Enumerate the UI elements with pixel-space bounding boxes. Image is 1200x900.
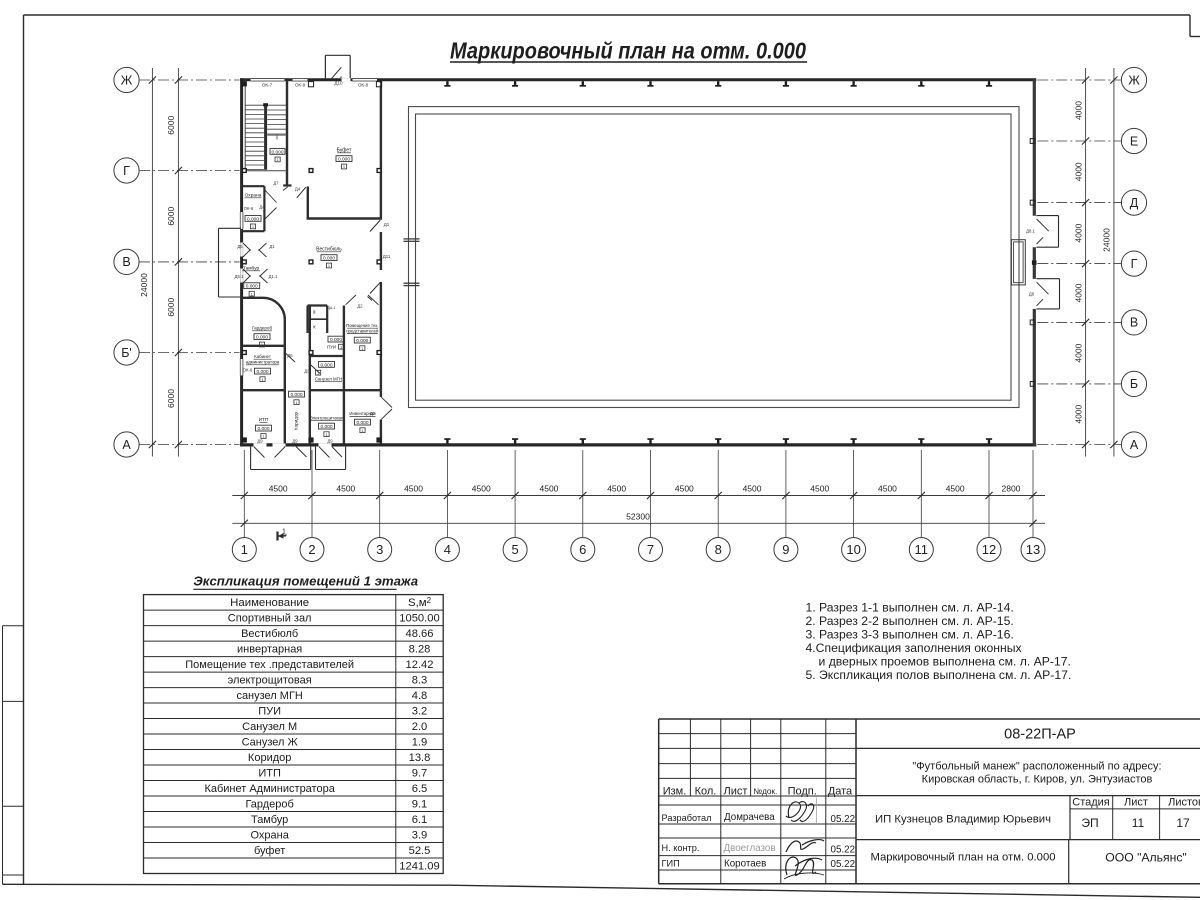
svg-text:В: В	[1130, 316, 1138, 330]
svg-text:Коридор: Коридор	[248, 752, 291, 764]
svg-text:ПУИ: ПУИ	[258, 705, 281, 717]
svg-text:6000: 6000	[166, 206, 176, 225]
svg-text:А: А	[122, 438, 131, 452]
svg-text:52300: 52300	[626, 511, 650, 521]
svg-text:представителей: представителей	[346, 328, 379, 333]
svg-text:Г: Г	[123, 164, 130, 178]
svg-text:4: 4	[444, 542, 451, 557]
svg-text:Двоеглазов: Двоеглазов	[724, 843, 776, 854]
svg-text:6000: 6000	[166, 297, 176, 316]
svg-text:4500: 4500	[946, 484, 965, 494]
svg-text:05.22: 05.22	[831, 814, 856, 825]
svg-text:Лист: Лист	[1124, 797, 1148, 809]
svg-text:1: 1	[282, 529, 286, 536]
svg-text:4500: 4500	[472, 484, 491, 494]
svg-text:3.9: 3.9	[412, 829, 428, 841]
svg-text:0.000: 0.000	[320, 424, 332, 430]
svg-text:6.5: 6.5	[412, 783, 428, 795]
svg-text:Гардероб: Гардероб	[245, 798, 293, 810]
svg-text:ОК-8: ОК-8	[358, 83, 369, 88]
svg-text:Коротаев: Коротаев	[724, 858, 766, 869]
svg-text:Вестибюлб: Вестибюлб	[241, 628, 298, 640]
svg-text:Ж: Ж	[1128, 73, 1140, 87]
svg-text:08-22П-АР: 08-22П-АР	[1004, 727, 1076, 743]
svg-text:Г: Г	[1131, 257, 1138, 271]
svg-text:10: 10	[846, 542, 860, 557]
svg-text:Стадия: Стадия	[1072, 797, 1110, 809]
svg-text:24000: 24000	[139, 273, 149, 297]
svg-text:Маркировочный план на отм. 0.0: Маркировочный план на отм. 0.000	[450, 38, 806, 64]
svg-text:санузел МГН: санузел МГН	[236, 690, 302, 702]
svg-text:52.5: 52.5	[409, 845, 431, 857]
svg-text:0.000: 0.000	[320, 362, 332, 368]
svg-text:и дверных проемов выполнена см: и дверных проемов выполнена см. л. АР-17…	[819, 655, 1071, 669]
svg-text:Охрана: Охрана	[250, 829, 289, 841]
svg-text:Д11: Д11	[383, 254, 391, 259]
svg-text:11: 11	[915, 542, 929, 557]
svg-text:4500: 4500	[607, 484, 626, 494]
svg-text:ЭП: ЭП	[1081, 816, 1098, 830]
svg-text:Санузел МГН: Санузел МГН	[315, 377, 343, 382]
svg-text:4500: 4500	[878, 484, 897, 494]
svg-text:0.000: 0.000	[330, 337, 342, 343]
svg-text:инвертарная: инвертарная	[237, 643, 302, 655]
svg-text:"Футбольный манеж" расположенн: "Футбольный манеж" расположенный по адре…	[912, 761, 1161, 773]
svg-text:буфет: буфет	[254, 845, 285, 857]
svg-text:2: 2	[308, 542, 315, 557]
svg-text:Д3: Д3	[304, 369, 310, 374]
svg-text:4000: 4000	[1073, 343, 1083, 362]
svg-text:1241.09: 1241.09	[399, 860, 439, 872]
svg-text:05.22: 05.22	[831, 859, 856, 870]
svg-text:ИП Кузнецов Владимир Юрьевич: ИП Кузнецов Владимир Юрьевич	[875, 814, 1051, 826]
svg-text:3: 3	[376, 542, 383, 557]
svg-text:Домрачева: Домрачева	[724, 812, 775, 823]
svg-text:ДА.1: ДА.1	[327, 306, 335, 310]
svg-text:0.000: 0.000	[256, 335, 268, 341]
svg-text:8: 8	[715, 542, 722, 557]
svg-text:3.2: 3.2	[412, 705, 428, 717]
svg-text:0.000: 0.000	[356, 420, 368, 426]
svg-text:13.8: 13.8	[409, 752, 431, 764]
svg-text:администратора: администратора	[246, 360, 280, 365]
svg-text:6000: 6000	[166, 116, 176, 135]
svg-text:5: 5	[511, 542, 518, 557]
svg-text:1. Разрез 1-1 выполнен см. л.: 1. Разрез 1-1 выполнен см. л. АР-14.	[806, 601, 1014, 615]
svg-text:0.000: 0.000	[246, 284, 258, 290]
svg-text:ПУИ: ПУИ	[327, 345, 336, 350]
svg-text:05.22: 05.22	[831, 844, 856, 855]
svg-text:9.1: 9.1	[412, 798, 428, 810]
svg-text:1: 1	[262, 378, 264, 382]
svg-text:Маркировочный план на отм. 0.0: Маркировочный план на отм. 0.000	[870, 852, 1055, 864]
svg-text:Тамбур: Тамбур	[251, 814, 288, 826]
svg-text:Кабинет Администратора: Кабинет Администратора	[204, 783, 335, 795]
svg-text:Листов: Листов	[1168, 797, 1200, 809]
svg-text:Д1: Д1	[384, 222, 390, 227]
svg-text:Коридор: Коридор	[294, 411, 299, 430]
svg-text:4500: 4500	[810, 484, 829, 494]
svg-text:Подп.: Подп.	[788, 786, 817, 798]
svg-text:Санузел Ж: Санузел Ж	[242, 736, 298, 748]
svg-text:11: 11	[1132, 816, 1145, 830]
svg-text:4.Спецификация заполнения окон: 4.Спецификация заполнения оконных	[806, 641, 1022, 655]
svg-text:0.000: 0.000	[338, 157, 350, 163]
svg-text:Б': Б'	[121, 346, 132, 360]
svg-text:1050.00: 1050.00	[399, 612, 439, 624]
svg-text:0.000: 0.000	[290, 392, 302, 398]
svg-text:Инвентарная: Инвентарная	[349, 411, 376, 416]
svg-text:ООО "Альянс": ООО "Альянс"	[1105, 851, 1187, 865]
svg-text:1: 1	[343, 165, 345, 169]
svg-text:0.000: 0.000	[323, 256, 335, 262]
svg-text:Изм.: Изм.	[663, 786, 687, 798]
svg-text:Д4: Д4	[295, 187, 301, 192]
svg-text:4500: 4500	[336, 484, 355, 494]
svg-text:Д10: Д10	[334, 81, 343, 86]
svg-text:Кол.: Кол.	[695, 786, 717, 798]
svg-text:Д2: Д2	[357, 304, 363, 309]
svg-text:8.3: 8.3	[412, 674, 428, 686]
svg-text:4500: 4500	[743, 484, 762, 494]
svg-text:Ж: Ж	[121, 73, 133, 87]
svg-text:Д4: Д4	[259, 205, 265, 210]
svg-text:№док.: №док.	[753, 787, 777, 796]
svg-text:Н. контр.: Н. контр.	[662, 843, 700, 853]
svg-text:Кабинет: Кабинет	[254, 354, 271, 359]
svg-text:Д7: Д7	[273, 181, 279, 186]
svg-text:1: 1	[263, 435, 265, 439]
svg-text:4000: 4000	[1073, 404, 1083, 423]
svg-text:Разработал: Разработал	[662, 813, 712, 823]
svg-text:Д8.1: Д8.1	[1026, 229, 1035, 234]
svg-text:0.000: 0.000	[271, 149, 283, 155]
svg-text:1: 1	[241, 542, 248, 557]
svg-text:0.000: 0.000	[257, 426, 269, 432]
svg-text:4000: 4000	[1073, 162, 1083, 181]
svg-text:12.42: 12.42	[406, 659, 434, 671]
svg-text:1: 1	[277, 158, 279, 162]
svg-text:17: 17	[1176, 816, 1190, 830]
svg-text:13: 13	[1026, 542, 1040, 557]
svg-text:ИТП: ИТП	[258, 767, 281, 779]
svg-text:Лист: Лист	[724, 786, 748, 798]
svg-text:6.1: 6.1	[412, 814, 428, 826]
svg-text:1: 1	[317, 371, 319, 375]
svg-text:Д1.1: Д1.1	[269, 274, 278, 279]
svg-text:М: М	[313, 311, 317, 314]
svg-text:ОК-6: ОК-6	[244, 206, 254, 211]
svg-text:4.8: 4.8	[412, 690, 428, 702]
svg-text:А: А	[1130, 438, 1139, 452]
svg-text:12: 12	[982, 542, 996, 557]
svg-text:Электрощитовая: Электрощитовая	[310, 416, 344, 421]
svg-text:Д1: Д1	[269, 244, 275, 249]
svg-text:1: 1	[261, 343, 263, 347]
svg-text:Кировская область, г. Киров, у: Кировская область, г. Киров, ул. Энтузиа…	[922, 774, 1153, 786]
svg-text:ОК-6: ОК-6	[243, 368, 253, 373]
svg-text:электрощитовая: электрощитовая	[228, 674, 312, 686]
svg-text:6: 6	[579, 542, 586, 557]
svg-text:Гардероб: Гардероб	[252, 326, 273, 331]
svg-text:ОК-9: ОК-9	[295, 83, 306, 88]
svg-text:В: В	[122, 255, 130, 269]
svg-text:Д9: Д9	[257, 439, 263, 444]
svg-text:1: 1	[326, 433, 328, 437]
svg-text:4000: 4000	[1073, 223, 1083, 242]
svg-text:7: 7	[647, 542, 654, 557]
svg-text:8.28: 8.28	[409, 643, 431, 655]
svg-text:Санузел М: Санузел М	[242, 721, 297, 733]
svg-text:1: 1	[296, 401, 298, 405]
svg-text:1: 1	[362, 429, 364, 433]
svg-text:0.000: 0.000	[256, 369, 268, 375]
svg-text:Спортивный зал: Спортивный зал	[228, 612, 312, 624]
svg-text:Дата: Дата	[828, 786, 853, 798]
svg-text:9.7: 9.7	[412, 767, 428, 779]
svg-text:2.0: 2.0	[412, 721, 428, 733]
svg-text:Помещение тех.: Помещение тех.	[346, 323, 379, 328]
svg-text:24000: 24000	[1102, 228, 1112, 252]
svg-text:4000: 4000	[1073, 101, 1083, 120]
svg-text:1: 1	[252, 225, 254, 229]
svg-text:Д8: Д8	[1029, 292, 1035, 297]
svg-text:9: 9	[782, 542, 789, 557]
svg-text:2800: 2800	[1002, 484, 1021, 494]
svg-text:Д5.1: Д5.1	[235, 274, 244, 279]
svg-text:0.000: 0.000	[356, 338, 368, 344]
svg-text:5. Экспликация полов выполнена: 5. Экспликация полов выполнена см. л. АР…	[806, 668, 1072, 682]
svg-text:Помещение тех .представителей: Помещение тех .представителей	[185, 659, 354, 671]
svg-text:Д: Д	[1130, 196, 1139, 210]
svg-text:6000: 6000	[166, 389, 176, 408]
svg-text:Экспликация помещений 1 этажа: Экспликация помещений 1 этажа	[193, 574, 418, 589]
svg-text:ОК-7: ОК-7	[262, 83, 273, 88]
svg-text:Наименование: Наименование	[230, 597, 309, 609]
svg-text:4500: 4500	[539, 484, 558, 494]
svg-text:Б: Б	[1130, 377, 1138, 391]
svg-text:Д6: Д6	[287, 353, 293, 358]
svg-text:Д5: Д5	[237, 244, 243, 249]
svg-text:1.9: 1.9	[412, 736, 428, 748]
svg-text:48.66: 48.66	[406, 628, 434, 640]
svg-text:Д9: Д9	[292, 439, 298, 444]
svg-text:3. Разрез 3-3 выполнен см. л.: 3. Разрез 3-3 выполнен см. л. АР-16.	[806, 628, 1014, 642]
svg-text:0.000: 0.000	[247, 216, 259, 222]
svg-text:4500: 4500	[404, 484, 423, 494]
svg-text:Е: Е	[1130, 134, 1138, 148]
svg-text:1: 1	[361, 347, 363, 351]
svg-text:4500: 4500	[269, 484, 288, 494]
svg-text:2. Разрез 2-2 выполнен см. л.: 2. Разрез 2-2 выполнен см. л. АР-15.	[806, 614, 1014, 628]
svg-text:1: 1	[340, 345, 342, 349]
svg-text:4500: 4500	[675, 484, 694, 494]
svg-text:1: 1	[251, 292, 253, 296]
svg-text:1: 1	[328, 264, 330, 268]
svg-text:Д9: Д9	[327, 439, 333, 444]
svg-text:ГИП: ГИП	[662, 858, 680, 868]
svg-text:4000: 4000	[1073, 283, 1083, 302]
